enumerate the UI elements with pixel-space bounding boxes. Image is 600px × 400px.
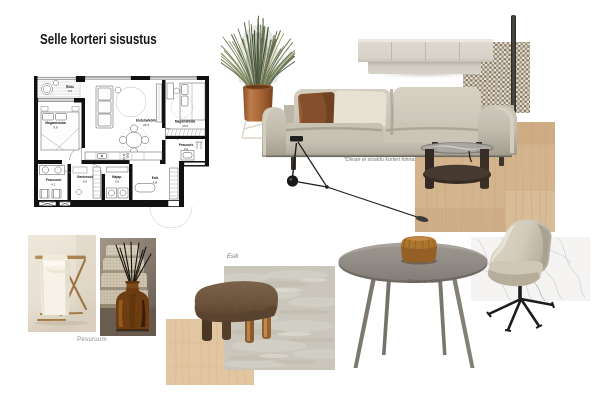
svg-text:3.6: 3.6 xyxy=(68,89,73,93)
svg-text:3.0: 3.0 xyxy=(115,179,120,183)
svg-text:24.3: 24.3 xyxy=(143,123,149,127)
svg-text:6.8: 6.8 xyxy=(153,180,158,184)
svg-text:9.9: 9.9 xyxy=(53,125,58,129)
svg-text:10.9: 10.9 xyxy=(182,124,188,128)
svg-text:4.1: 4.1 xyxy=(51,182,56,186)
svg-text:5.5: 5.5 xyxy=(83,179,88,183)
svg-text:4.2: 4.2 xyxy=(184,147,189,151)
